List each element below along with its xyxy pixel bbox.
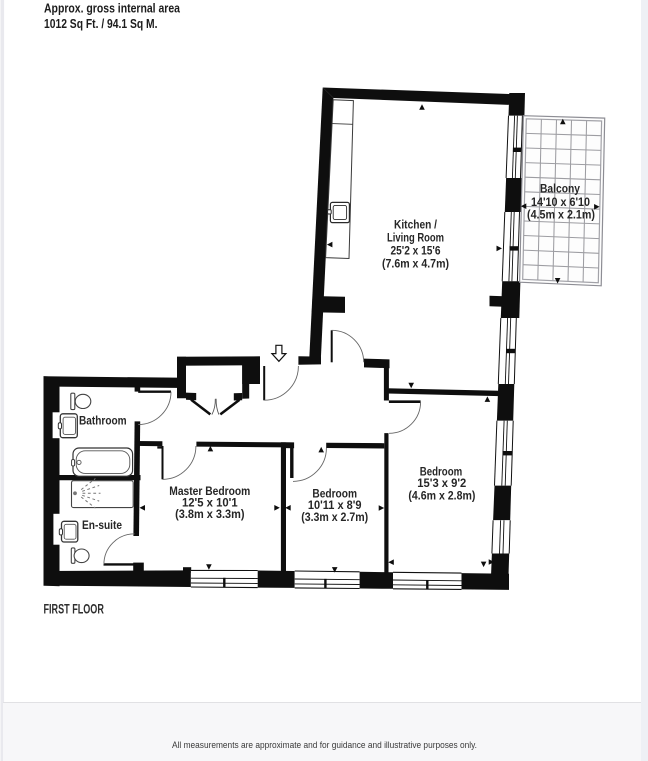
svg-text:(3.3m x 2.7m): (3.3m x 2.7m) bbox=[301, 510, 368, 524]
svg-text:Kitchen /: Kitchen / bbox=[394, 218, 438, 232]
svg-text:25'2 x 15'6: 25'2 x 15'6 bbox=[391, 244, 441, 258]
svg-text:(4.6m x 2.8m): (4.6m x 2.8m) bbox=[408, 489, 475, 503]
svg-text:Bathroom: Bathroom bbox=[79, 414, 127, 428]
svg-text:(3.8m x 3.3m): (3.8m x 3.3m) bbox=[175, 507, 244, 521]
svg-text:Balcony: Balcony bbox=[540, 182, 580, 196]
svg-text:1012 Sq Ft. / 94.1 Sq M.: 1012 Sq Ft. / 94.1 Sq M. bbox=[44, 16, 158, 31]
svg-text:(7.6m x 4.7m): (7.6m x 4.7m) bbox=[382, 257, 449, 271]
svg-text:FIRST FLOOR: FIRST FLOOR bbox=[44, 602, 105, 617]
svg-text:(4.5m x 2.1m): (4.5m x 2.1m) bbox=[527, 208, 595, 222]
svg-text:All measurements are approxima: All measurements are approximate and for… bbox=[172, 740, 477, 750]
svg-text:En-suite: En-suite bbox=[82, 518, 122, 532]
svg-text:Living Room: Living Room bbox=[387, 231, 444, 245]
svg-text:Approx. gross internal area: Approx. gross internal area bbox=[44, 1, 181, 16]
